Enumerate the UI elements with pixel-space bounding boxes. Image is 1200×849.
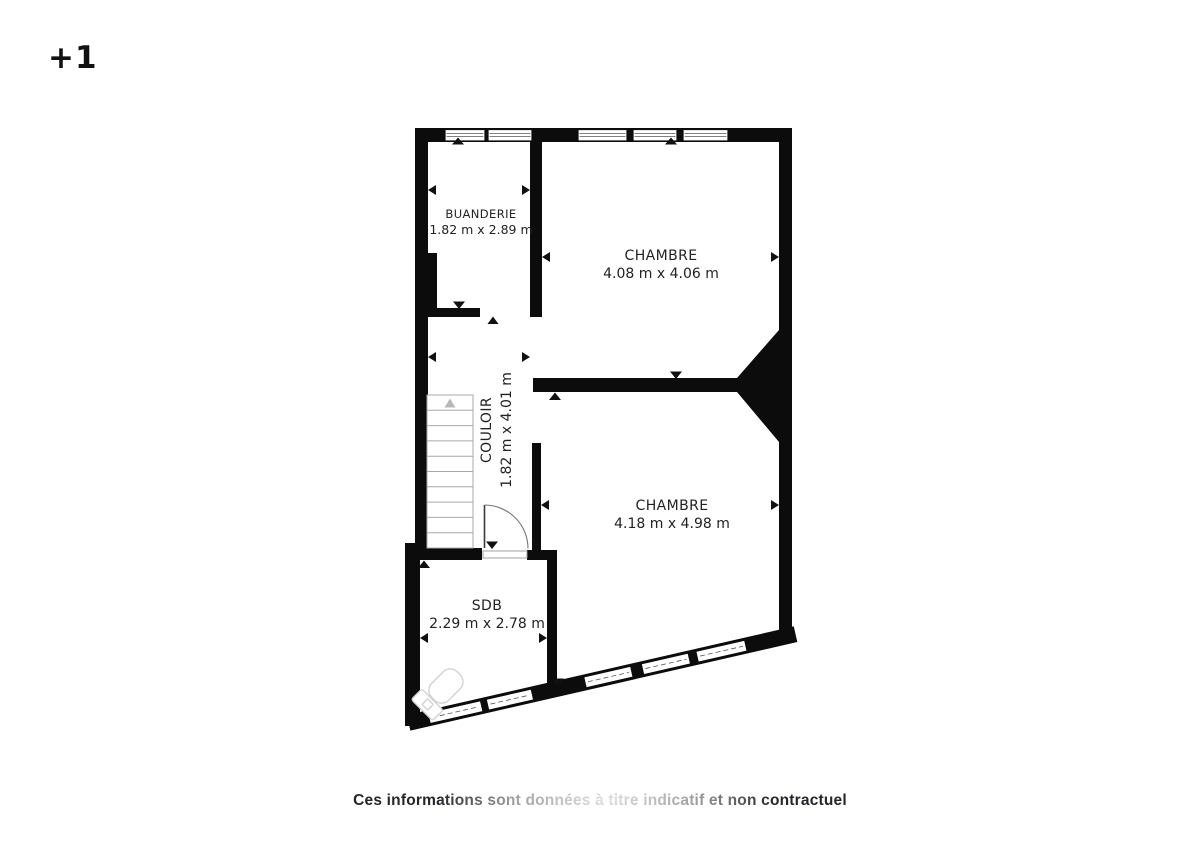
dimension-arrow bbox=[522, 352, 530, 362]
room-label-sdb: SDB 2.29 m x 2.78 m bbox=[429, 598, 545, 632]
dimension-arrow bbox=[420, 633, 428, 643]
room-label-chambre-bottom: CHAMBRE 4.18 m x 4.98 m bbox=[614, 498, 730, 532]
room-dimensions: 1.82 m x 2.89 m bbox=[429, 223, 532, 237]
room-name: BUANDERIE bbox=[429, 208, 532, 221]
room-label-couloir: COULOIR 1.82 m x 4.01 m bbox=[478, 372, 516, 488]
wall-chambres-divider bbox=[533, 378, 737, 392]
door-swing-icon bbox=[483, 505, 528, 558]
dimension-arrow bbox=[771, 500, 779, 510]
wall-funnel bbox=[737, 330, 779, 442]
dimension-arrow bbox=[488, 317, 499, 325]
wall-couloir-right bbox=[532, 443, 541, 553]
dimension-arrow bbox=[541, 500, 549, 510]
room-name: COULOIR bbox=[478, 372, 496, 488]
wall-left bbox=[415, 128, 428, 548]
room-name: CHAMBRE bbox=[614, 498, 730, 514]
dimension-arrow bbox=[539, 633, 547, 643]
dimension-arrow bbox=[549, 393, 561, 401]
wall-right bbox=[779, 128, 792, 633]
window-chambre-top bbox=[578, 130, 728, 142]
wall-sdb-top-left bbox=[420, 548, 482, 560]
wall-buanderie-bottom bbox=[427, 308, 480, 317]
dimension-arrow bbox=[771, 252, 779, 262]
door-threshold bbox=[483, 551, 527, 558]
room-label-buanderie: BUANDERIE 1.82 m x 2.89 m bbox=[429, 208, 532, 238]
dimension-arrow bbox=[542, 252, 550, 262]
room-name: CHAMBRE bbox=[603, 248, 719, 264]
room-name: SDB bbox=[429, 598, 545, 614]
windows-diagonal bbox=[428, 640, 747, 723]
room-dimensions: 2.29 m x 2.78 m bbox=[429, 616, 545, 632]
dimension-arrow bbox=[453, 302, 465, 310]
dimension-arrow bbox=[428, 185, 436, 195]
windows-top bbox=[445, 130, 728, 142]
stairs-up-icon bbox=[427, 395, 473, 548]
dimension-arrow bbox=[486, 542, 498, 550]
room-dimensions: 4.08 m x 4.06 m bbox=[603, 266, 719, 282]
floorplan-page: +1 bbox=[0, 0, 1200, 849]
wall-diagonal bbox=[407, 626, 798, 730]
dimension-arrow bbox=[428, 352, 436, 362]
floorplan-drawing bbox=[0, 0, 1200, 849]
wall-sdb-right bbox=[547, 550, 557, 688]
dimension-arrow bbox=[522, 185, 530, 195]
room-dimensions: 1.82 m x 4.01 m bbox=[498, 372, 516, 488]
dimension-arrow bbox=[670, 372, 682, 380]
wall-pillar bbox=[428, 253, 437, 310]
disclaimer-text: Ces informations sont données à titre in… bbox=[353, 792, 847, 810]
room-label-chambre-top: CHAMBRE 4.08 m x 4.06 m bbox=[603, 248, 719, 282]
room-dimensions: 4.18 m x 4.98 m bbox=[614, 516, 730, 532]
